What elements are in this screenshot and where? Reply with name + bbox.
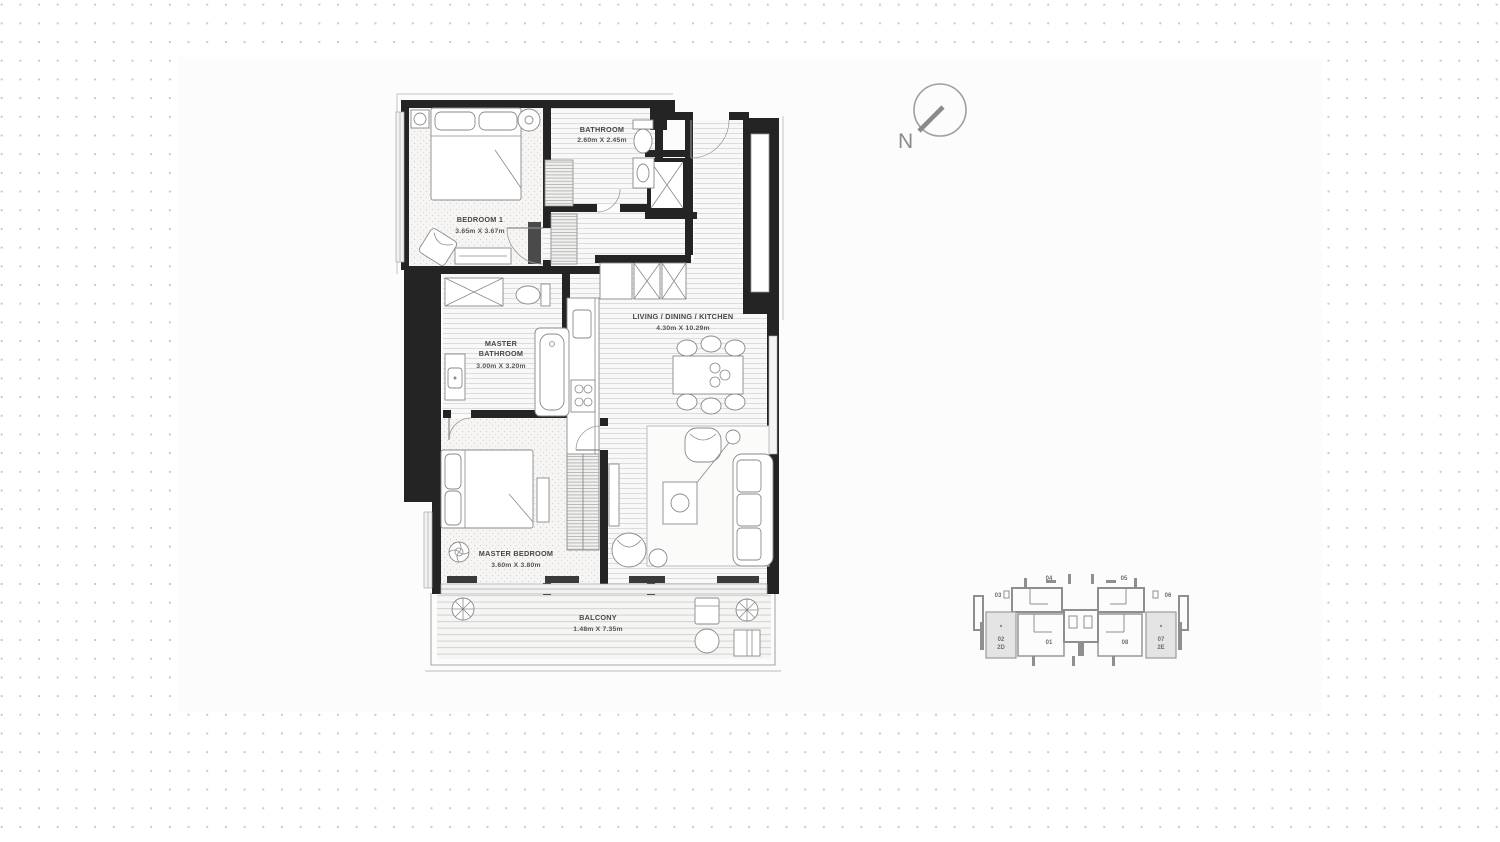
bathtub-icon: [535, 328, 569, 416]
compass-needle-icon: [919, 107, 943, 131]
balcony-dims: 1.48m X 7.35m: [573, 626, 622, 633]
bathroom-dims: 2.60m X 2.45m: [577, 137, 626, 144]
pantry-icon: [662, 263, 686, 299]
keyplan-label-05: 05: [1121, 576, 1128, 582]
north-compass: N: [893, 72, 988, 167]
tv-unit-icon: [609, 464, 619, 526]
cabinet-icon: [600, 263, 632, 299]
coffee-table-icon: [663, 482, 697, 524]
keyplan-label-08: 08: [1122, 640, 1129, 646]
lamp-icon: [414, 113, 426, 125]
living-dims: 4.30m X 10.29m: [656, 325, 709, 332]
keyplan-label-07-type: 2E: [1157, 645, 1164, 651]
keyplan-label-02-type: 2D: [997, 645, 1005, 651]
toilet-icon: [516, 284, 550, 306]
living-label: LIVING / DINING / KITCHEN: [633, 312, 734, 321]
toilet-icon: [633, 120, 653, 153]
compass-north-label: N: [898, 130, 913, 153]
keyplan-label-04: 04: [1046, 576, 1053, 582]
plant-icon-right: [736, 599, 758, 621]
plant-icon: [452, 598, 474, 620]
keyplan-label-03: 03: [995, 593, 1002, 599]
keyplan-label-01: 01: [1046, 640, 1053, 646]
balcony-seat-icon: [734, 630, 760, 656]
balcony-table-icon: [695, 629, 719, 653]
wardrobe-shower-icon: [445, 278, 503, 306]
balcony-chair-icon: [695, 598, 719, 624]
keyplan-unit-02-highlight: [986, 612, 1016, 658]
bench-icon: [537, 478, 549, 522]
dining-set-icon: [673, 336, 745, 414]
sofa-icon: [733, 454, 773, 566]
shower-icon: [545, 160, 573, 206]
keyplan-label-06: 06: [1165, 593, 1172, 599]
round-lamp-icon: [518, 109, 540, 131]
bedroom1-dims: 3.65m X 3.67m: [455, 228, 504, 235]
ceiling-fan-icon: [449, 542, 469, 562]
keyplan-label-07: 07: [1158, 637, 1165, 643]
cooktop-icon: [571, 380, 595, 412]
keyplan-label-02: 02: [998, 637, 1005, 643]
accent-chair-icon: [685, 428, 721, 462]
fridge-icon: [634, 263, 660, 299]
balcony-label: BALCONY: [579, 613, 617, 622]
master-bathroom-dims: 3.00m X 3.20m: [476, 363, 525, 370]
vanity-icon: [445, 354, 465, 400]
key-plan: 04 05 03 06 02 2D 01 08 07 2E: [972, 566, 1190, 670]
bed-icon: [441, 450, 533, 528]
wardrobe-icon: [567, 454, 599, 550]
floorplan: BEDROOM 1 3.65m X 3.67m BATHROOM 2.60m X…: [395, 88, 795, 680]
keyplan-unit-07-highlight: [1146, 612, 1176, 658]
bed-icon: [431, 108, 521, 200]
master-bedroom-label: MASTER BEDROOM: [479, 549, 553, 558]
master-bathroom-label1: MASTER: [485, 339, 518, 348]
sink-icon: [573, 310, 591, 338]
master-bathroom-label2: BATHROOM: [479, 349, 523, 358]
bathroom-label: BATHROOM: [580, 125, 624, 134]
bedroom1-label: BEDROOM 1: [457, 215, 503, 224]
hallway-closet-icon: [551, 214, 577, 264]
master-bedroom-dims: 3.60m X 3.80m: [491, 562, 540, 569]
entry-corridor-floor: [694, 120, 743, 260]
basin-icon: [633, 158, 654, 188]
